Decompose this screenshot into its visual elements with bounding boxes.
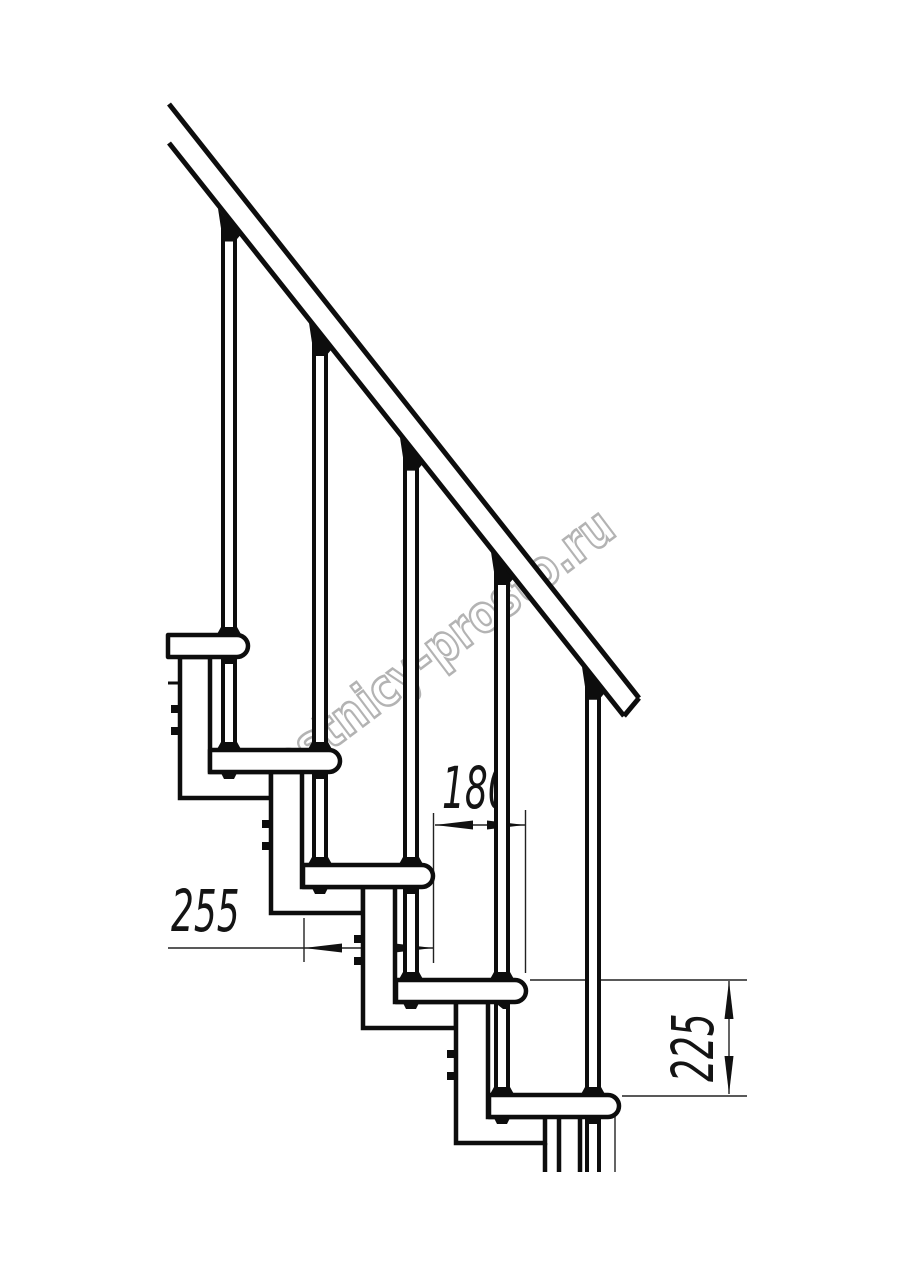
collar-icon: [489, 1087, 515, 1096]
staircase-drawing: lestnicy-prosto.ru 255 180 225: [0, 0, 914, 1280]
bolt-icon: [354, 935, 363, 943]
tread-2: [210, 750, 340, 772]
dim-label-225: 225: [660, 1013, 727, 1082]
dim-label-255: 255: [171, 878, 240, 945]
bolt-icon: [447, 1050, 456, 1058]
bolt-icon: [171, 705, 180, 713]
collar-icon: [216, 627, 242, 636]
arrow-255-left: [304, 944, 342, 953]
tread-3: [303, 865, 433, 887]
bolt-icon: [171, 727, 180, 735]
technical-drawing-page: lestnicy-prosto.ru 255 180 225: [0, 0, 914, 1280]
collar-icon: [398, 972, 424, 981]
bolt-icon: [262, 842, 271, 850]
collar-icon: [216, 742, 242, 751]
arrow-225-top: [725, 981, 734, 1019]
collar-icon: [307, 857, 333, 866]
tread-4: [396, 980, 526, 1002]
tread-1: [168, 635, 248, 657]
collar-icon: [489, 972, 515, 981]
bolt-icon: [354, 957, 363, 965]
bolt-icon: [447, 1072, 456, 1080]
collar-icon: [398, 857, 424, 866]
collar-icon: [580, 1087, 606, 1096]
tread-5: [489, 1095, 619, 1117]
baluster-rods: [221, 228, 601, 1172]
dimension-labels: 255 180 225: [171, 755, 727, 1082]
bolt-icon: [262, 820, 271, 828]
